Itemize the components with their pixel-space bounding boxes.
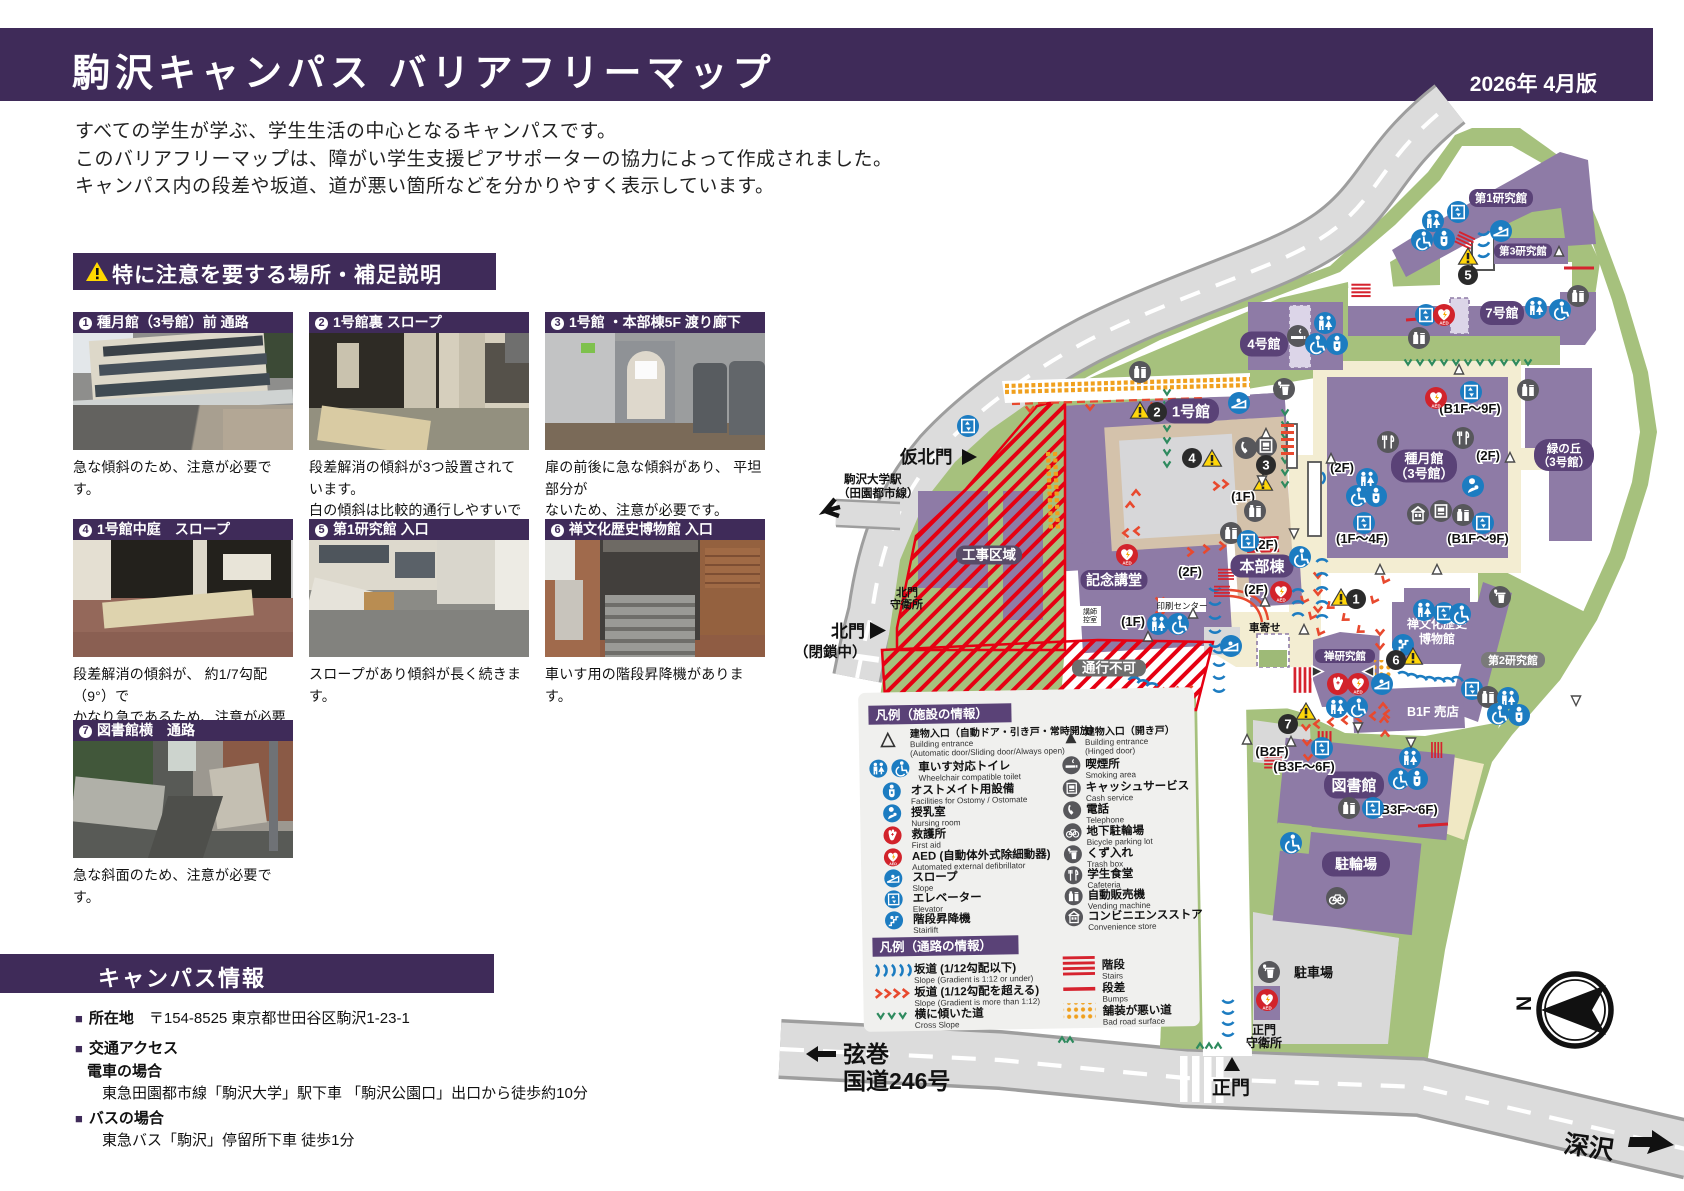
svg-text:授乳室: 授乳室 [911,804,946,819]
svg-text:1号館: 1号館 [1172,402,1210,420]
svg-text:正門: 正門 [1212,1077,1250,1099]
svg-text:本部棟: 本部棟 [1239,557,1285,575]
svg-text:駒沢大学駅: 駒沢大学駅 [844,472,902,486]
svg-text:(B3F〜6F): (B3F〜6F) [1376,802,1437,817]
svg-text:喫煙所: 喫煙所 [1085,756,1120,771]
svg-text:Nursing room: Nursing room [911,818,960,828]
svg-text:控室: 控室 [1083,615,1097,624]
svg-text:Wheelchair compatible toilet: Wheelchair compatible toilet [918,772,1021,783]
svg-text:舗装が悪い道: 舗装が悪い道 [1102,1003,1173,1018]
svg-text:（田園都市線）: （田園都市線） [838,486,919,500]
svg-text:第1研究館: 第1研究館 [1475,191,1527,205]
svg-text:(2F): (2F) [1476,448,1500,463]
svg-text:Cash service: Cash service [1086,793,1134,803]
svg-text:B1F 売店: B1F 売店 [1407,704,1460,719]
svg-text:正門: 正門 [1252,1023,1276,1037]
svg-text:地下駐輪場: 地下駐輪場 [1086,823,1144,838]
svg-text:(1F): (1F) [1121,614,1145,629]
svg-text:国道246号: 国道246号 [843,1068,950,1094]
svg-text:段差: 段差 [1102,980,1126,994]
svg-text:通行不可: 通行不可 [1082,660,1136,676]
svg-text:工事区域: 工事区域 [962,547,1016,563]
svg-text:Bicycle parking lot: Bicycle parking lot [1087,837,1154,847]
svg-text:救護所: 救護所 [911,826,946,841]
svg-text:自動販売機: 自動販売機 [1087,887,1145,902]
svg-text:N: N [1513,996,1536,1011]
svg-text:Bumps: Bumps [1102,994,1128,1003]
svg-text:4: 4 [1188,451,1196,466]
svg-text:守衛所: 守衛所 [890,597,923,611]
svg-text:車寄せ: 車寄せ [1249,621,1281,634]
svg-text:禅研究館: 禅研究館 [1323,650,1366,663]
svg-text:凡例（施設の情報）: 凡例（施設の情報） [875,706,988,723]
svg-text:講師: 講師 [1083,607,1097,616]
svg-text:階段: 階段 [1102,957,1126,971]
svg-text:駐車場: 駐車場 [1294,965,1333,980]
svg-text:Cross Slope: Cross Slope [915,1020,960,1030]
svg-text:7号館: 7号館 [1485,306,1518,321]
svg-text:(B2F): (B2F) [1255,744,1288,759]
svg-text:種月館: 種月館 [1404,451,1443,466]
svg-text:スロープ: スロープ [912,869,958,884]
svg-text:第3研究館: 第3研究館 [1499,245,1547,258]
svg-text:凡例（通路の情報）: 凡例（通路の情報） [879,938,992,955]
svg-text:Stairs: Stairs [1102,971,1123,980]
svg-text:深沢: 深沢 [1562,1130,1616,1165]
svg-text:(2F): (2F) [1244,582,1268,597]
svg-text:弦巻: 弦巻 [843,1041,889,1067]
svg-text:学生食堂: 学生食堂 [1087,866,1133,881]
svg-text:Bad road surface: Bad road surface [1103,1017,1166,1027]
svg-text:印刷センター: 印刷センター [1156,601,1207,611]
svg-text:(B3F〜6F): (B3F〜6F) [1273,759,1334,774]
svg-text:(Hinged door): (Hinged door) [1085,746,1135,756]
svg-text:北門: 北門 [896,585,918,599]
svg-text:記念講堂: 記念講堂 [1086,572,1142,588]
svg-text:緑の丘: 緑の丘 [1547,441,1582,455]
svg-text:Convenience store: Convenience store [1088,922,1157,932]
svg-text:5: 5 [1464,268,1471,283]
svg-text:図書館: 図書館 [1331,776,1376,794]
svg-text:Stairlift: Stairlift [913,926,939,935]
svg-text:（閉鎖中）: （閉鎖中） [794,643,867,661]
svg-text:First aid: First aid [912,841,942,851]
svg-text:Slope: Slope [912,884,934,893]
svg-text:(B1F〜9F): (B1F〜9F) [1447,531,1508,546]
svg-text:第2研究館: 第2研究館 [1488,653,1538,667]
svg-text:4号館: 4号館 [1247,337,1280,352]
svg-text:仮北門: 仮北門 [899,447,953,467]
svg-text:横に傾いた道: 横に傾いた道 [915,1006,985,1021]
svg-text:2: 2 [1153,405,1160,420]
svg-text:Telephone: Telephone [1086,815,1124,825]
svg-text:3: 3 [1262,458,1269,473]
svg-text:博物館: 博物館 [1419,631,1455,646]
svg-text:エレベーター: エレベーター [913,890,982,905]
svg-text:北門: 北門 [831,622,865,641]
svg-text:駐輪場: 駐輪場 [1335,856,1377,872]
svg-text:守衛所: 守衛所 [1246,1035,1282,1050]
svg-text:6: 6 [1392,653,1399,668]
svg-text:くず入れ: くず入れ [1087,845,1134,860]
svg-text:電話: 電話 [1086,802,1110,816]
svg-text:（3号館）: （3号館） [1394,466,1453,481]
svg-text:1: 1 [1352,592,1359,607]
svg-text:7: 7 [1284,717,1291,732]
svg-text:Smoking area: Smoking area [1085,770,1136,780]
svg-text:(B1F〜9F): (B1F〜9F) [1439,401,1500,416]
svg-text:(2F): (2F) [1178,564,1202,579]
svg-text:階段昇降機: 階段昇降機 [913,911,971,926]
svg-text:（3号館）: （3号館） [1538,455,1590,469]
